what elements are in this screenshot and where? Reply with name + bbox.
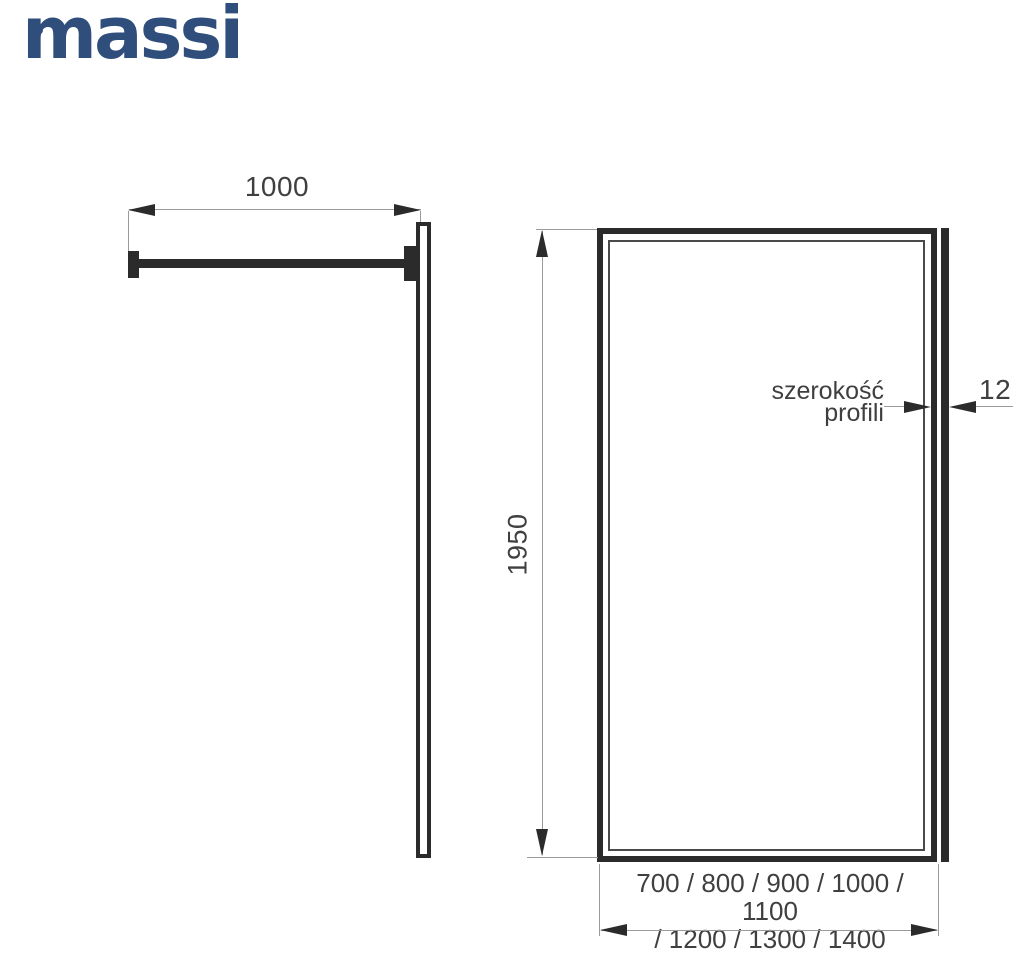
profile-width-value: 12	[979, 374, 1019, 406]
widths-arrow-right-icon	[911, 924, 938, 936]
height-dim-extension-bottom	[527, 857, 598, 858]
profile-width-label-line2: profili	[734, 402, 884, 424]
profile-arrow-left-icon	[949, 401, 976, 413]
available-widths-label: 700 / 800 / 900 / 1000 / 1100 / 1200 / 1…	[610, 869, 930, 953]
height-dim-arrow-up-icon	[536, 230, 548, 257]
width-dim-arrow-right-icon	[394, 204, 421, 216]
logo-dot-icon	[33, 25, 43, 35]
height-dim-line	[542, 231, 543, 855]
support-arm	[139, 259, 407, 268]
widths-extension-right	[938, 864, 939, 936]
width-dim-extension-left	[128, 211, 129, 252]
glass-panel-side-view	[416, 222, 431, 858]
wall-bracket	[128, 251, 139, 278]
profile-arrow-right-icon	[904, 401, 931, 413]
height-dim-arrow-down-icon	[536, 829, 548, 856]
width-dim-arrow-left-icon	[128, 204, 155, 216]
widths-arrow-left-icon	[600, 924, 627, 936]
height-dim-label: 1950	[503, 485, 534, 605]
available-widths-line1: 700 / 800 / 900 / 1000 / 1100	[610, 869, 930, 925]
widths-dim-line	[601, 930, 937, 931]
height-dim-extension-top	[536, 229, 597, 230]
profile-leader-left	[884, 406, 905, 407]
profile-width-label: szerokość profili	[734, 380, 884, 424]
drawing-canvas: massi 1000 1950 szerokość profili	[0, 0, 1020, 956]
profile-leader-right	[976, 406, 1013, 407]
width-dim-label: 1000	[217, 171, 337, 203]
massi-logo: massi	[0, 0, 260, 80]
wall-profile-strip	[941, 228, 949, 862]
glass-panel-front-inner	[608, 240, 925, 851]
logo-text: massi	[22, 0, 241, 75]
width-dim-line	[129, 209, 421, 210]
